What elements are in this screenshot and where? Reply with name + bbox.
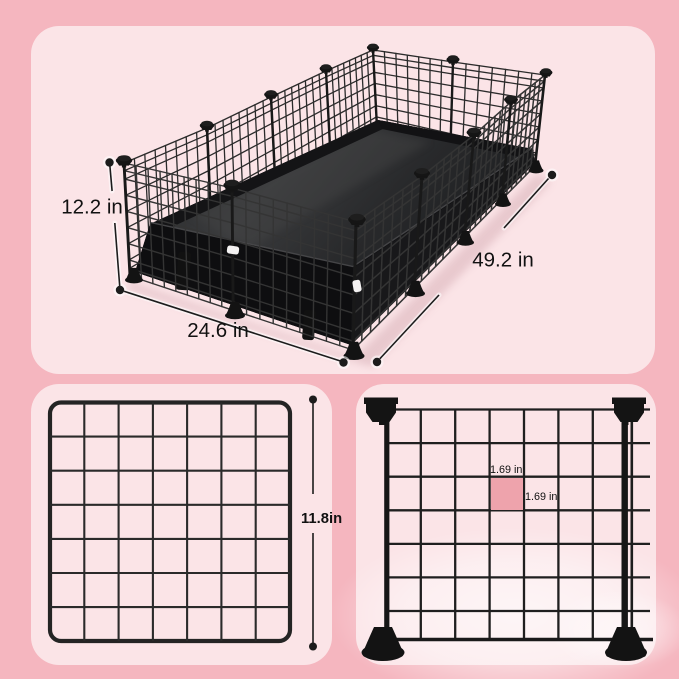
svg-text:11.8in: 11.8in — [301, 511, 342, 527]
svg-text:1.69 in: 1.69 in — [490, 464, 522, 476]
svg-text:1.69 in: 1.69 in — [525, 491, 557, 503]
svg-text:12.2 in: 12.2 in — [61, 196, 123, 219]
svg-text:24.6 in: 24.6 in — [187, 319, 249, 342]
svg-text:49.2 in: 49.2 in — [472, 249, 534, 272]
